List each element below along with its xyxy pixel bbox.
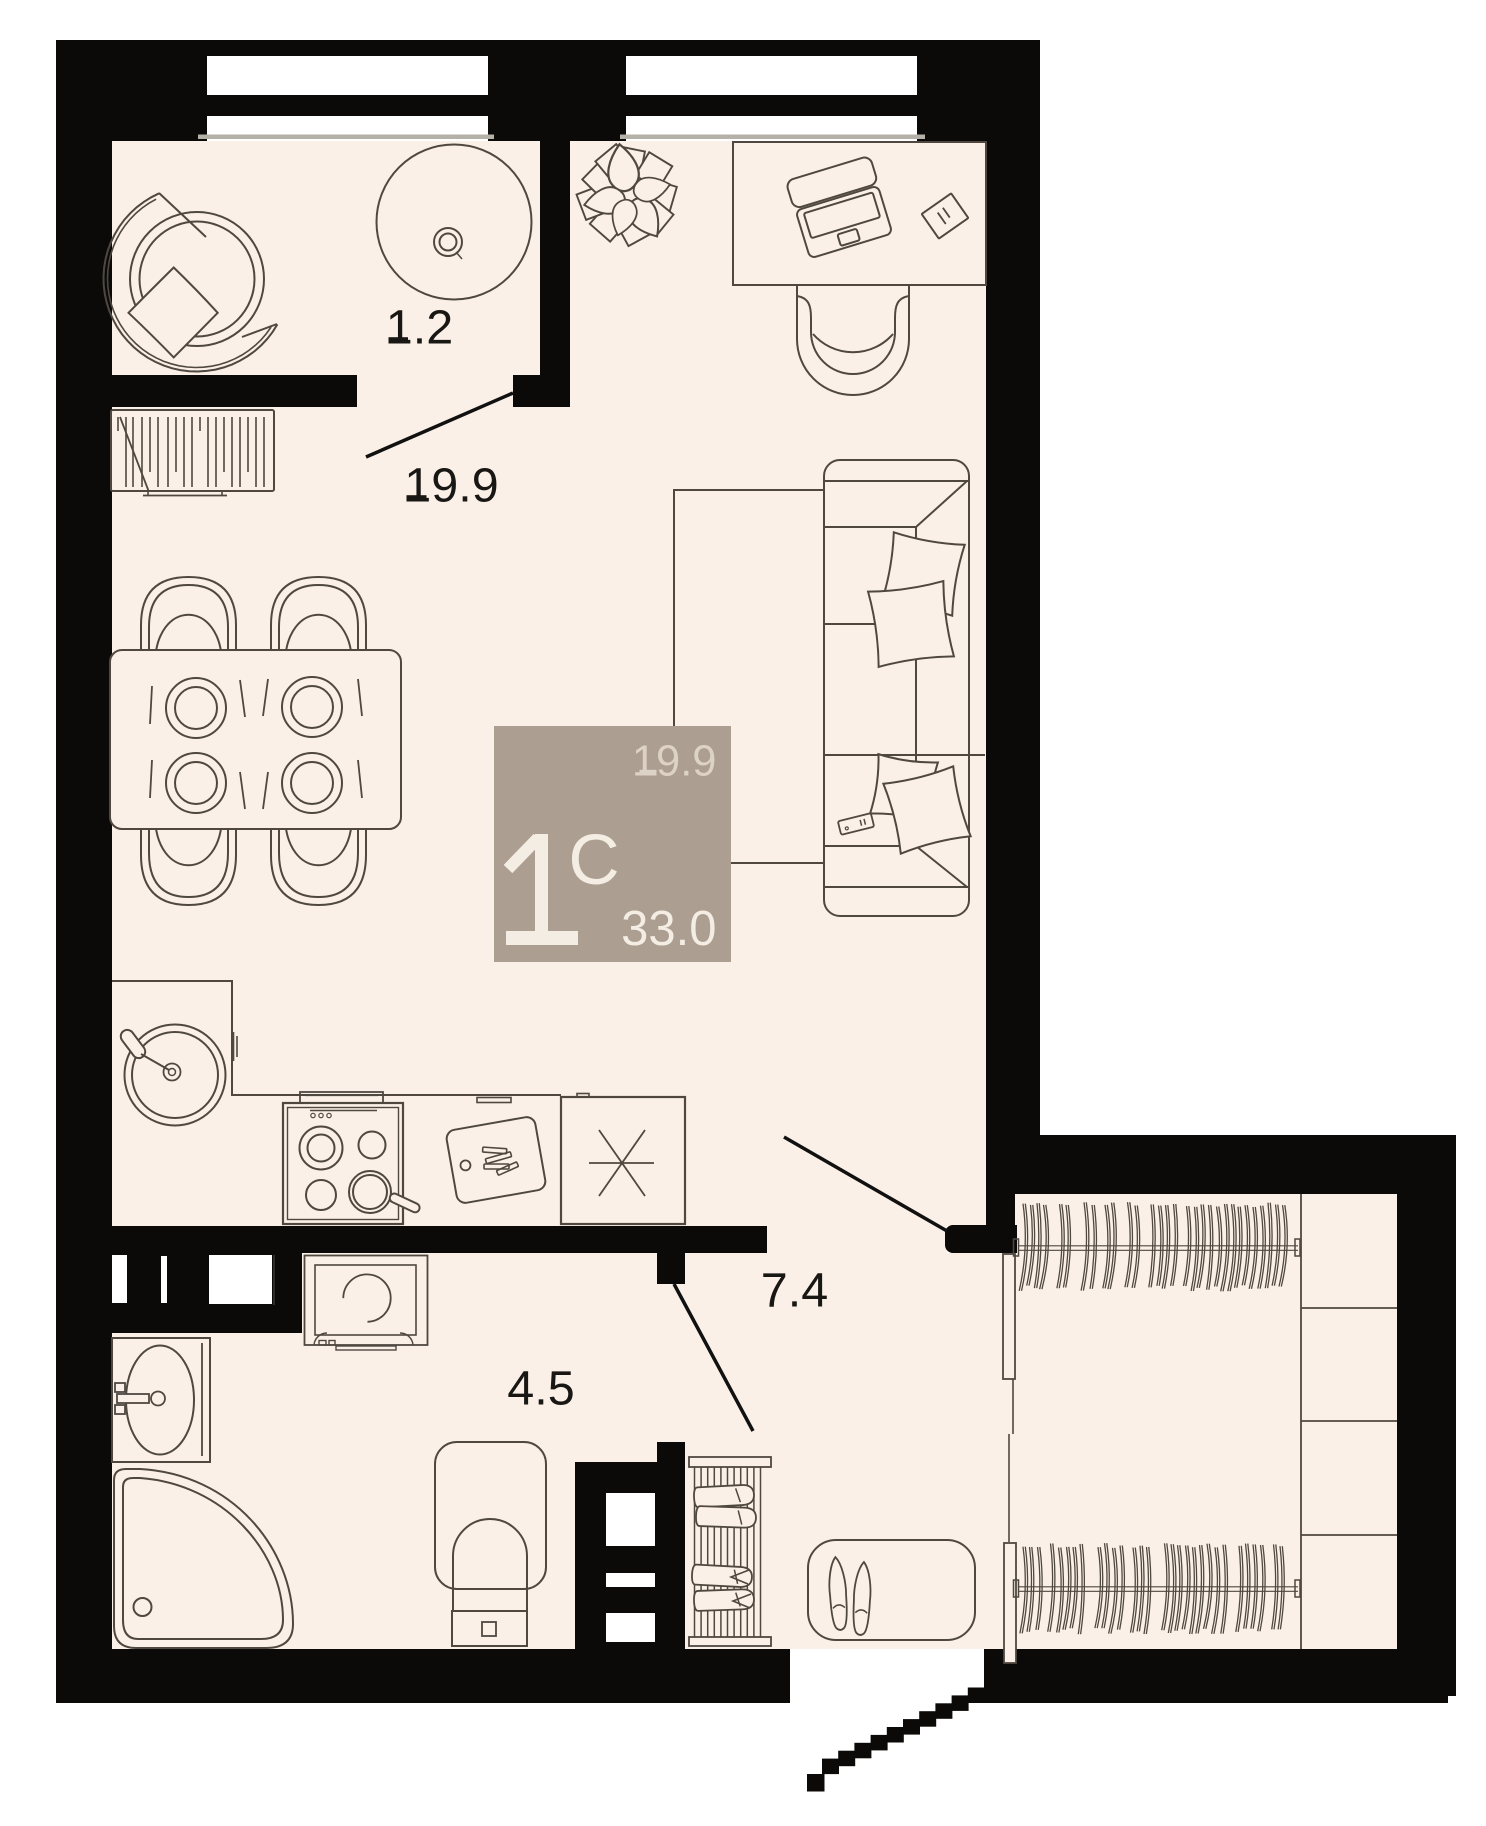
svg-text:19.9: 19.9 xyxy=(404,459,498,513)
svg-text:33.0: 33.0 xyxy=(621,902,716,956)
svg-text:4.5: 4.5 xyxy=(507,1362,574,1416)
svg-text:C: C xyxy=(568,821,619,900)
svg-text:1.2: 1.2 xyxy=(386,301,453,355)
svg-text:19.9: 19.9 xyxy=(632,738,717,786)
svg-text:7.4: 7.4 xyxy=(761,1264,828,1318)
